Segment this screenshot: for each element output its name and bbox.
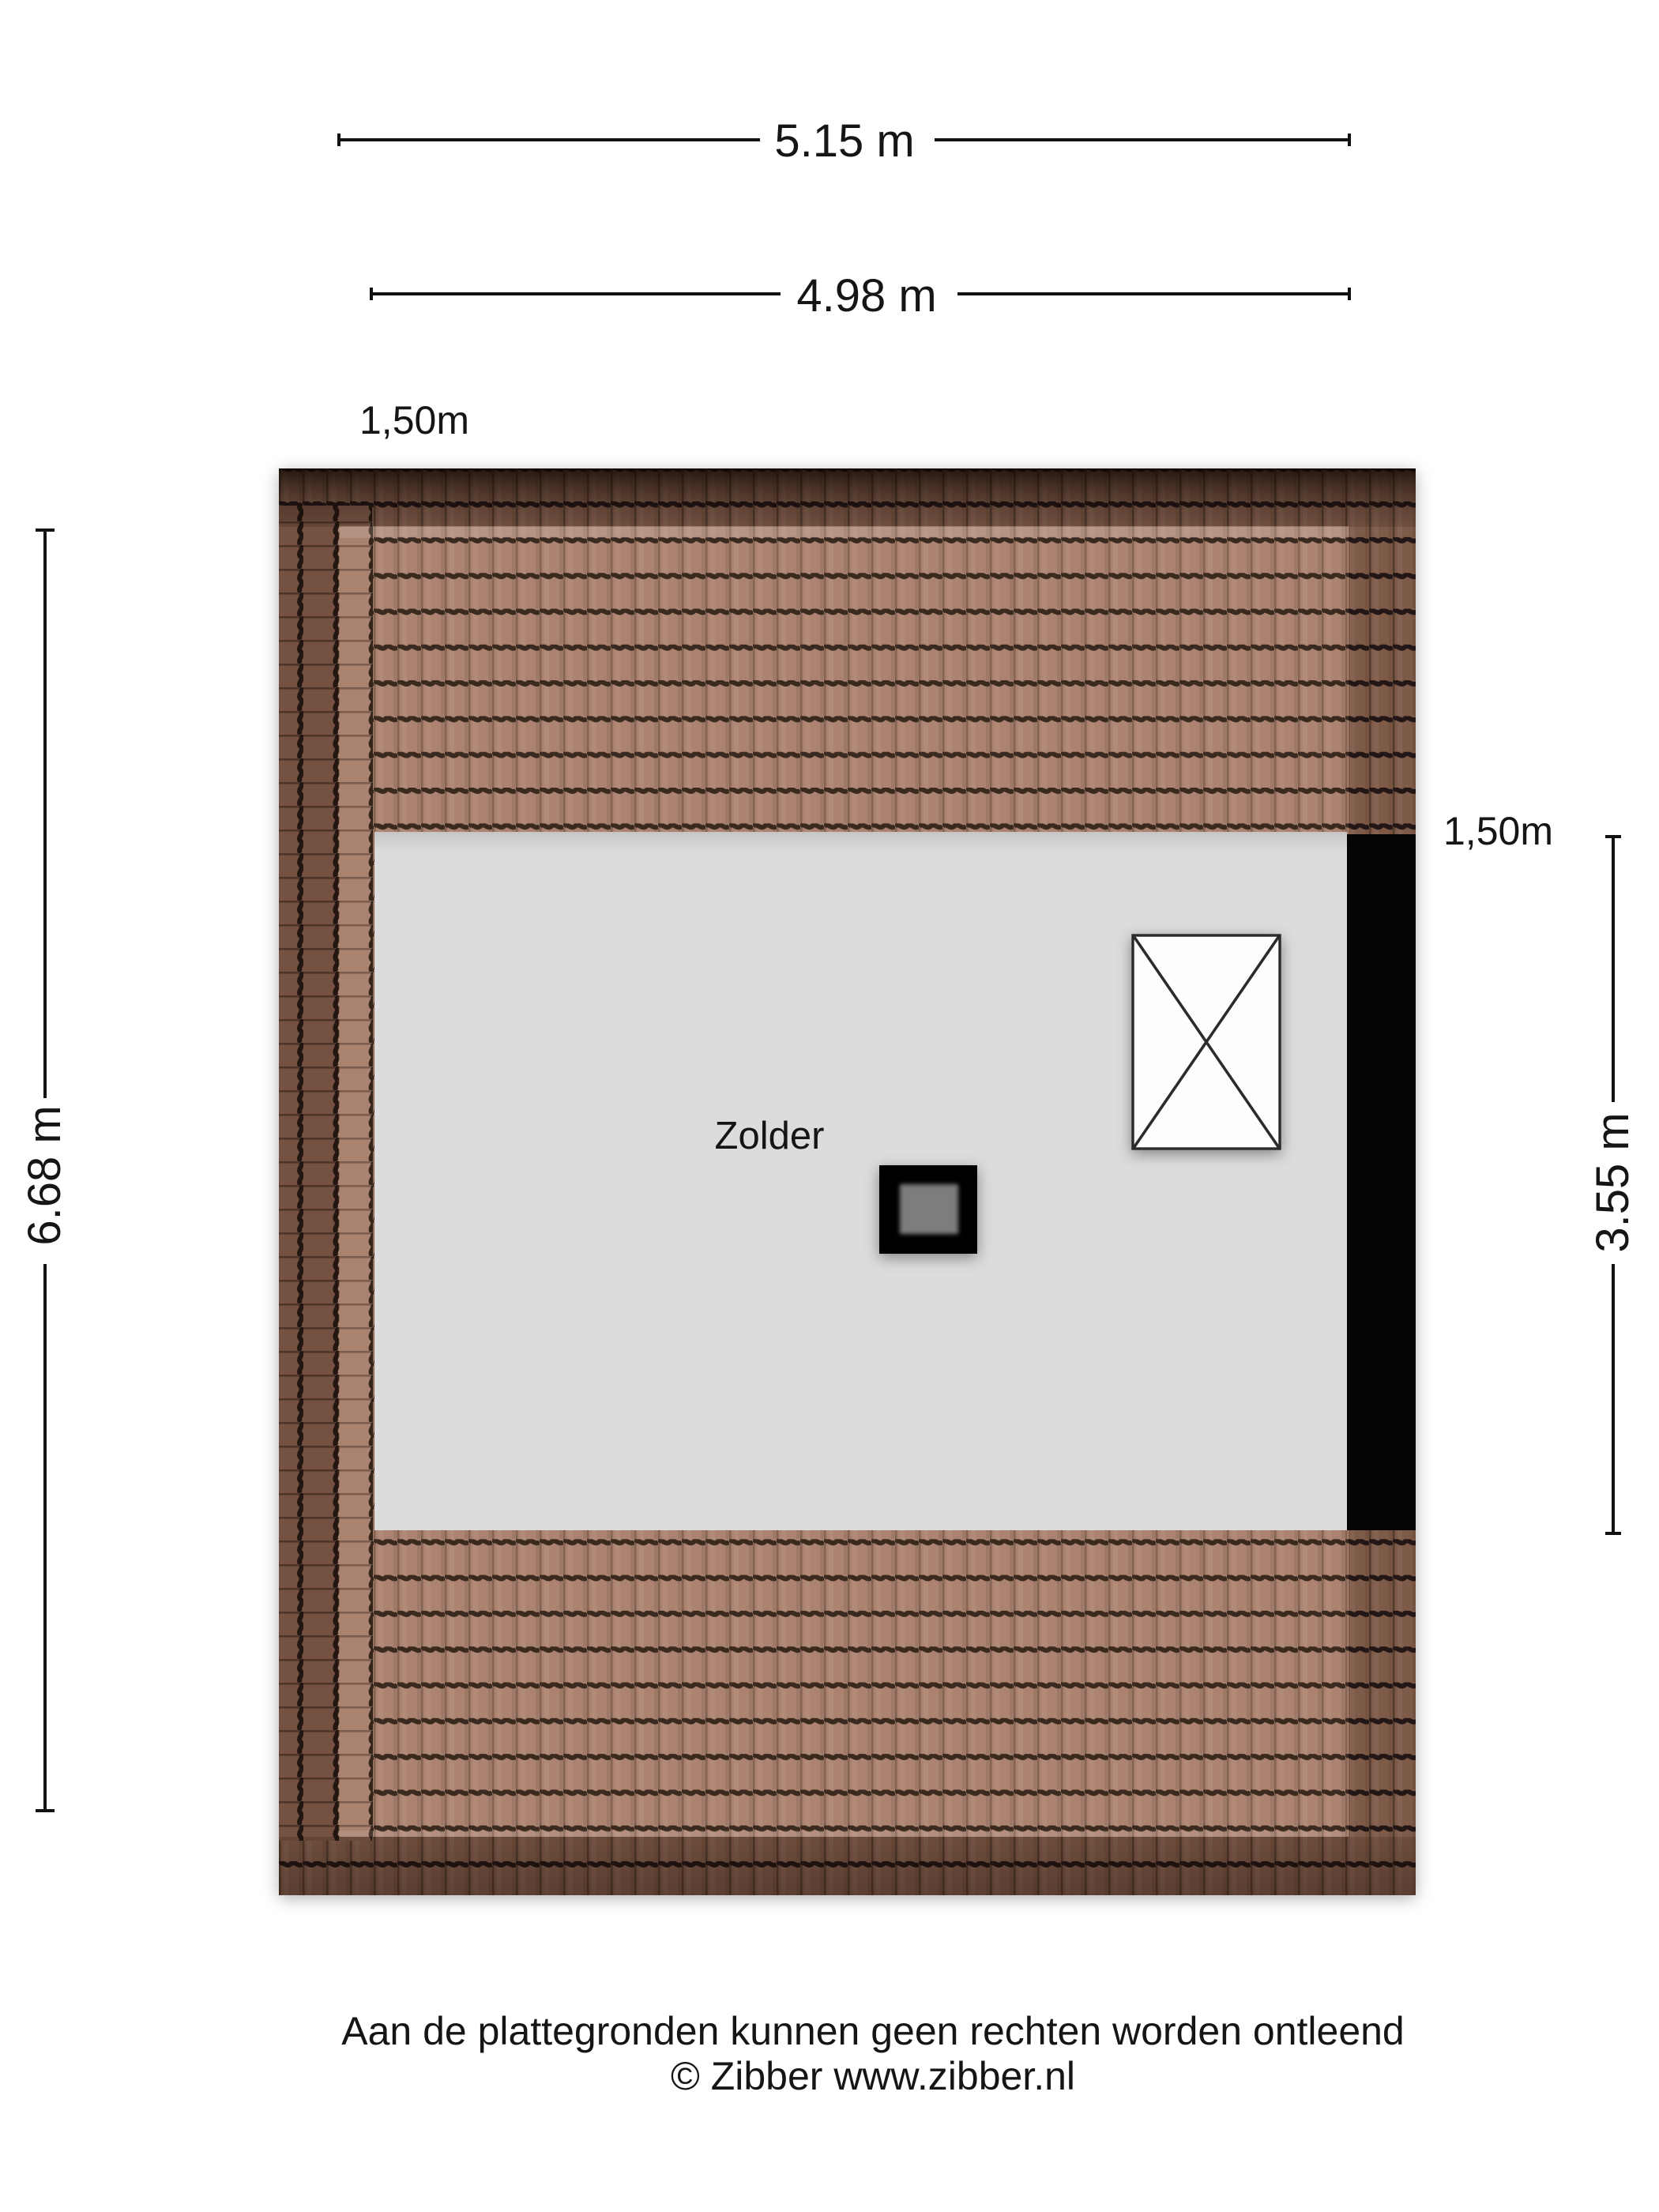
svg-text:3.55 m: 3.55 m xyxy=(1587,1112,1638,1252)
svg-text:© Zibber www.zibber.nl: © Zibber www.zibber.nl xyxy=(671,2054,1075,2098)
svg-text:1,50m: 1,50m xyxy=(359,398,469,442)
svg-text:5.15 m: 5.15 m xyxy=(774,115,914,167)
svg-text:Zolder: Zolder xyxy=(715,1115,825,1157)
svg-text:Aan de plattegronden kunnen ge: Aan de plattegronden kunnen geen rechten… xyxy=(341,2009,1405,2053)
svg-text:4.98 m: 4.98 m xyxy=(796,270,936,322)
svg-text:1,50m: 1,50m xyxy=(1443,809,1553,853)
svg-text:6.68 m: 6.68 m xyxy=(19,1105,70,1245)
